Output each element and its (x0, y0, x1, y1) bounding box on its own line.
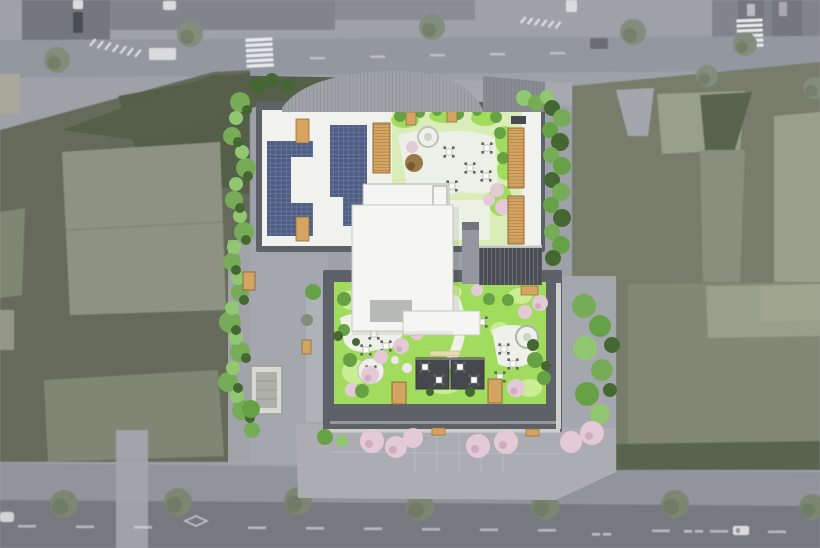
site-plan-rendering (0, 0, 820, 548)
site-plan-canvas (0, 0, 820, 548)
haze-overlay (0, 0, 820, 548)
